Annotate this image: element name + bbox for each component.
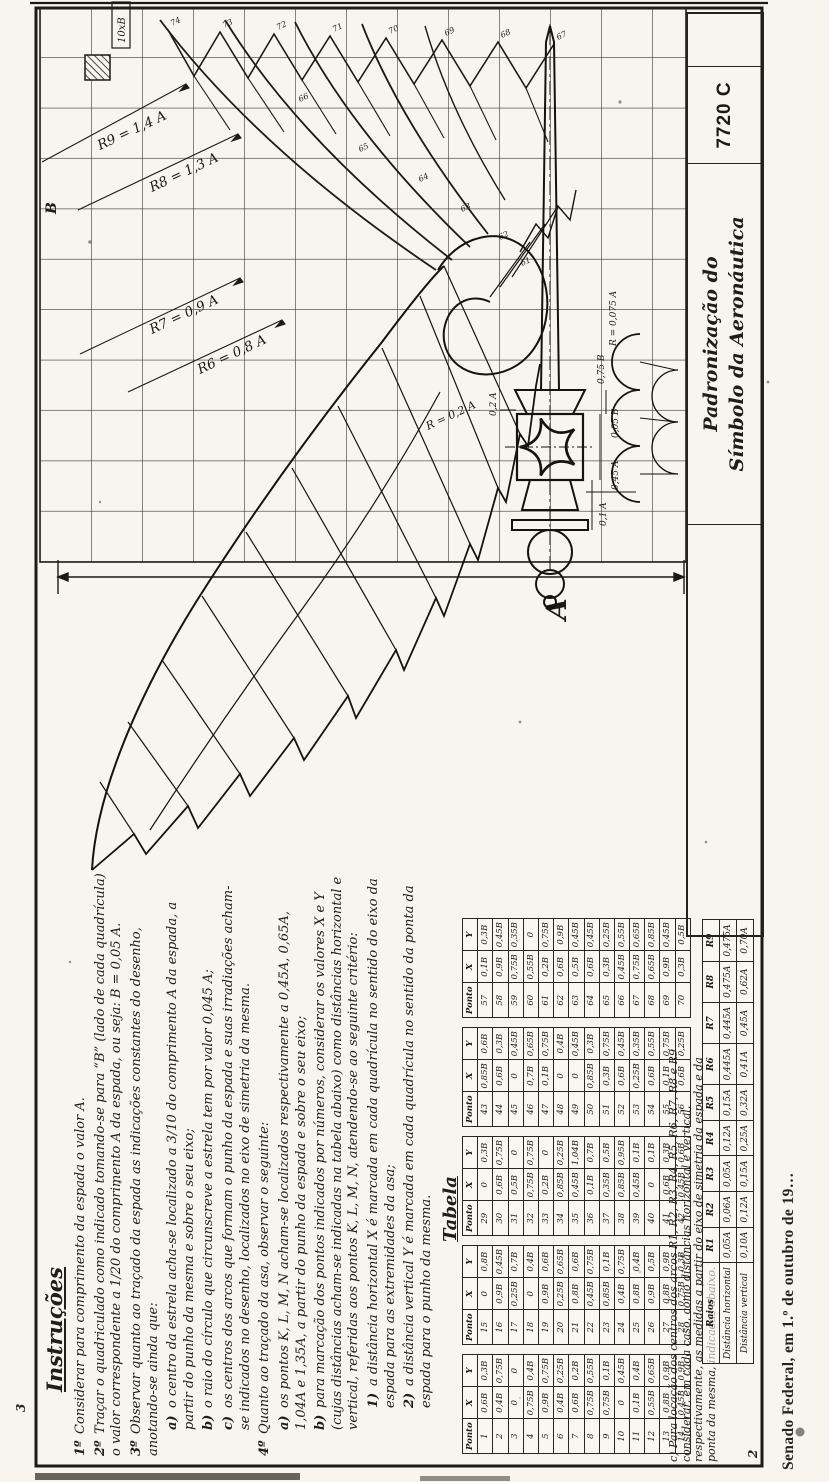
- table-row: 500,85B0,3B: [584, 1028, 599, 1127]
- table-row: 4000,1B: [645, 1137, 660, 1236]
- table-row: 1000,45B: [614, 1355, 629, 1454]
- table-row: 430,85B0,6B: [478, 1028, 493, 1127]
- table-row: 660,45B0,55B: [614, 919, 629, 1018]
- instructions-block: Instruções 1ºConsiderar para comprimento…: [42, 872, 439, 1456]
- table-row: 1500,8B: [478, 1246, 493, 1345]
- table-row: 200,25B0,65B: [554, 1246, 569, 1345]
- hilt-dim-02a: 0,2 A: [489, 392, 499, 416]
- table-row: 390,45B0,1B: [630, 1137, 645, 1236]
- instruction-subitem: 2)a distância vertical Y é marcada em ca…: [402, 872, 435, 1408]
- raios-table: RaiosR1R2R3R4R5R6R7R8R9Distância horizon…: [702, 919, 754, 1364]
- table-row: 210,8B0,6B: [569, 1246, 584, 1345]
- table-row: 4800,4B: [554, 1028, 569, 1127]
- table-row: 240,4B0,75B: [614, 1246, 629, 1345]
- drawing-title: Padronização do Símbolo da Aeronáutica: [688, 164, 762, 525]
- stray-mark-bottom: 2: [746, 1450, 760, 1458]
- instruction-subitem: 1)a distância horizontal X é marcada em …: [366, 872, 399, 1408]
- table-row: 300,6B0,75B: [493, 1137, 508, 1236]
- table-row: 540,6B0,55B: [645, 1028, 660, 1127]
- table-row: 160,9B0,45B: [493, 1246, 508, 1345]
- dimension-line-a: [58, 560, 684, 594]
- table-row: Distância vertical0,10A0,12A0,15A0,25A0,…: [737, 920, 754, 1364]
- table-row: 340,85B0,25B: [554, 1137, 569, 1236]
- tabela-heading: Tabela: [440, 1176, 461, 1242]
- drawing-sheet: A 10xB B: [0, 0, 829, 1482]
- instruction-subitem: b)o raio do círculo que circunscreve a e…: [201, 872, 218, 1430]
- table-row: 60,4B0,25B: [554, 1355, 569, 1454]
- table-row: RaiosR1R2R3R4R5R6R7R8R9: [703, 920, 720, 1364]
- table-row: 230,85B0,1B: [599, 1246, 614, 1345]
- table-row: 1800,4B: [523, 1246, 538, 1345]
- table-row: 670,75B0,65B: [630, 919, 645, 1018]
- table-row: 530,25B0,35B: [630, 1028, 645, 1127]
- table-row: 650,3B0,25B: [599, 919, 614, 1018]
- table-row: 80,75B0,55B: [584, 1355, 599, 1454]
- table-row: 220,45B0,75B: [584, 1246, 599, 1345]
- title-strip-spacer: [688, 525, 762, 935]
- instruction-subitem: a)os pontos K, L, M, N acham-se localiza…: [277, 872, 310, 1430]
- instruction-item: 3ºObservar quanto ao traçado da espada a…: [129, 872, 162, 1456]
- raios-table-wrap: RaiosR1R2R3R4R5R6R7R8R9Distância horizon…: [702, 919, 754, 1364]
- table-row: 520,6B0,45B: [614, 1028, 629, 1127]
- table-row: 120,55B0,65B: [645, 1355, 660, 1454]
- table-row: 90,75B0,1B: [599, 1355, 614, 1454]
- table-row: 680,65B0,85B: [645, 919, 660, 1018]
- table-row: 370,35B0,5B: [599, 1137, 614, 1236]
- points-table-4: PontoXY430,85B0,6B440,6B0,3B4500,45B460,…: [462, 1027, 691, 1127]
- point-tables: PontoXY10,6B0,3B20,4B0,75B30040,75B0,4B5…: [462, 918, 691, 1454]
- table-row: 50,9B0,75B: [538, 1355, 553, 1454]
- scanned-drawing-page: { "title_block": { "line1": "Padronizaçã…: [0, 0, 829, 1482]
- table-row: 330,2B0: [538, 1137, 553, 1236]
- table-row: PontoXY: [463, 919, 478, 1018]
- table-row: 110,1B0,4B: [630, 1355, 645, 1454]
- table-row: 10,6B0,3B: [478, 1355, 493, 1454]
- hilt-dim-01a: 0,1 A: [599, 502, 609, 526]
- table-row: 4500,45B: [508, 1028, 523, 1127]
- points-table-3: PontoXY2900,3B300,6B0,75B310,5B0320,75B0…: [462, 1136, 691, 1236]
- table-row: 4900,45B: [569, 1028, 584, 1127]
- table-row: 260,9B0,5B: [645, 1246, 660, 1345]
- instructions-heading: Instruções: [42, 872, 67, 1392]
- table-row: 170,25B0,7B: [508, 1246, 523, 1345]
- instruction-item: 1ºConsiderar para comprimento da espada …: [73, 872, 90, 1456]
- hilt-dim-005b: 0,05 B: [611, 408, 621, 438]
- table-row: Distância horizontal0,05A0,06A0,05A0,12A…: [720, 920, 737, 1364]
- instruction-subitem: c)os centros dos arcos que formam o punh…: [221, 872, 254, 1430]
- table-row: 610,2B0,75B: [538, 919, 553, 1018]
- table-row: 460,7B0,65B: [523, 1028, 538, 1127]
- table-row: PontoXY: [463, 1355, 478, 1454]
- table-row: 20,4B0,75B: [493, 1355, 508, 1454]
- table-row: 300: [508, 1355, 523, 1454]
- hilt-dim-075b: 0,75 B: [597, 354, 607, 384]
- table-row: 640,6B0,45B: [584, 919, 599, 1018]
- caption-senado-federal: Senado Federal, em 1.º de outubro de 19…: [780, 1010, 798, 1470]
- table-row: PontoXY: [463, 1246, 478, 1345]
- instruction-item: 2ºTraçar o quadriculado como indicado to…: [93, 872, 126, 1456]
- table-row: 350,45B1,04B: [569, 1137, 584, 1236]
- stray-mark-top: 3: [14, 1404, 28, 1412]
- drawing-number: 7720 C: [688, 67, 762, 164]
- title-strip-end: [688, 14, 762, 67]
- hilt-dim-r0075a: R = 0,075 A: [609, 290, 619, 347]
- grid-b-label: B: [44, 202, 60, 215]
- title-block: Padronização do Símbolo da Aeronáutica 7…: [686, 12, 764, 937]
- table-row: 470,1B0,75B: [538, 1028, 553, 1127]
- table-row: 40,75B0,4B: [523, 1355, 538, 1454]
- table-row: PontoXY: [463, 1137, 478, 1236]
- table-row: 320,75B0,75B: [523, 1137, 538, 1236]
- table-row: PontoXY: [463, 1028, 478, 1127]
- points-table-2: PontoXY1500,8B160,9B0,45B170,25B0,7B1800…: [462, 1245, 691, 1345]
- table-row: 360,1B0,7B: [584, 1137, 599, 1236]
- table-row: 570,1B0,3B: [478, 919, 493, 1018]
- table-row: 590,75B0,35B: [508, 919, 523, 1018]
- points-table-5: PontoXY570,1B0,3B580,9B0,45B590,75B0,35B…: [462, 918, 691, 1018]
- table-row: 690,9B0,45B: [660, 919, 675, 1018]
- table-row: 580,9B0,45B: [493, 919, 508, 1018]
- drawing-title-line2: Símbolo da Aeronáutica: [725, 164, 751, 524]
- table-row: 600,55B0: [523, 919, 538, 1018]
- table-row: 70,6B0,2B: [569, 1355, 584, 1454]
- table-row: 380,85B0,95B: [614, 1137, 629, 1236]
- instruction-subitem: b)para marcação dos pontos indicados por…: [313, 872, 363, 1430]
- table-row: 630,5B0,45B: [569, 919, 584, 1018]
- ten-b-label: 10xB: [117, 17, 128, 43]
- table-row: 620,6B0,9B: [554, 919, 569, 1018]
- instruction-item: 4ºQuanto ao traçado da asa, observar o s…: [257, 872, 274, 1456]
- table-row: 440,6B0,3B: [493, 1028, 508, 1127]
- hilt-dim-045a: 0,45 A: [611, 460, 621, 490]
- points-table-1: PontoXY10,6B0,3B20,4B0,75B30040,75B0,4B5…: [462, 1354, 691, 1454]
- table-row: 2900,3B: [478, 1137, 493, 1236]
- table-row: 510,3B0,75B: [599, 1028, 614, 1127]
- table-row: 190,9B0,6B: [538, 1246, 553, 1345]
- drawing-title-line1: Padronização do: [699, 164, 725, 524]
- table-row: 250,8B0,4B: [630, 1246, 645, 1345]
- instruction-subitem: a)o centro da estrela acha-se localizado…: [165, 872, 198, 1430]
- table-row: 310,5B0: [508, 1137, 523, 1236]
